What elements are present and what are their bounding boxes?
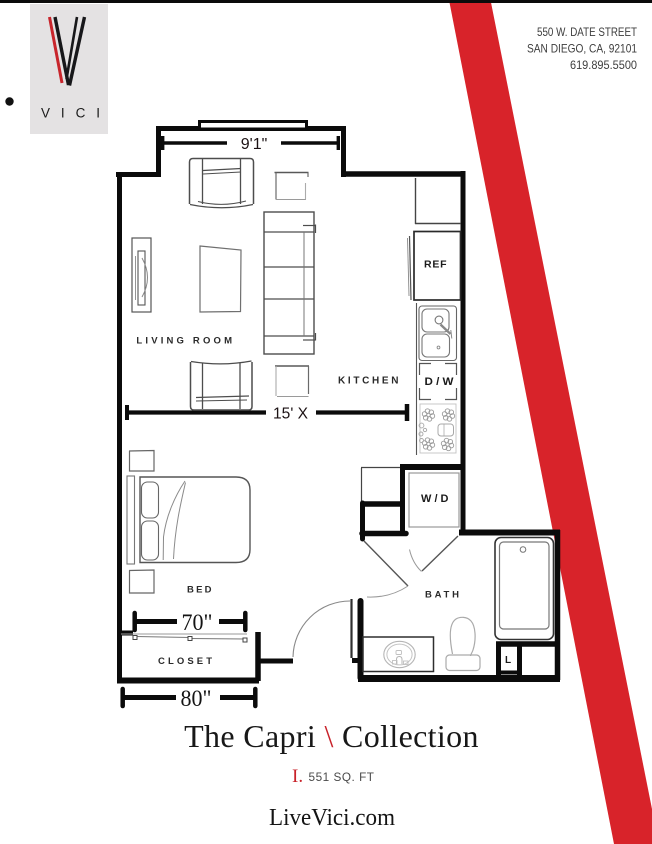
svg-text:LiveVici.com: LiveVici.com (269, 805, 395, 831)
svg-text:80": 80" (181, 686, 212, 711)
svg-text:I.: I. (292, 766, 303, 787)
svg-text:15' X: 15' X (273, 406, 308, 423)
svg-text:SAN DIEGO, CA, 92101: SAN DIEGO, CA, 92101 (527, 42, 637, 56)
svg-text:D / W: D / W (425, 376, 455, 388)
svg-text:W / D: W / D (421, 493, 449, 505)
svg-text:9'1": 9'1" (241, 136, 268, 153)
svg-text:550 W. DATE STREET: 550 W. DATE STREET (537, 25, 638, 39)
svg-text:L: L (505, 655, 511, 666)
svg-text:70": 70" (182, 610, 213, 635)
svg-text:The Capri \ Collection: The Capri \ Collection (184, 718, 479, 754)
svg-text:619.895.5500: 619.895.5500 (570, 58, 637, 72)
svg-text:551 SQ. FT: 551 SQ. FT (309, 772, 375, 784)
svg-text:BED: BED (187, 585, 212, 596)
svg-text:REF: REF (424, 259, 447, 271)
